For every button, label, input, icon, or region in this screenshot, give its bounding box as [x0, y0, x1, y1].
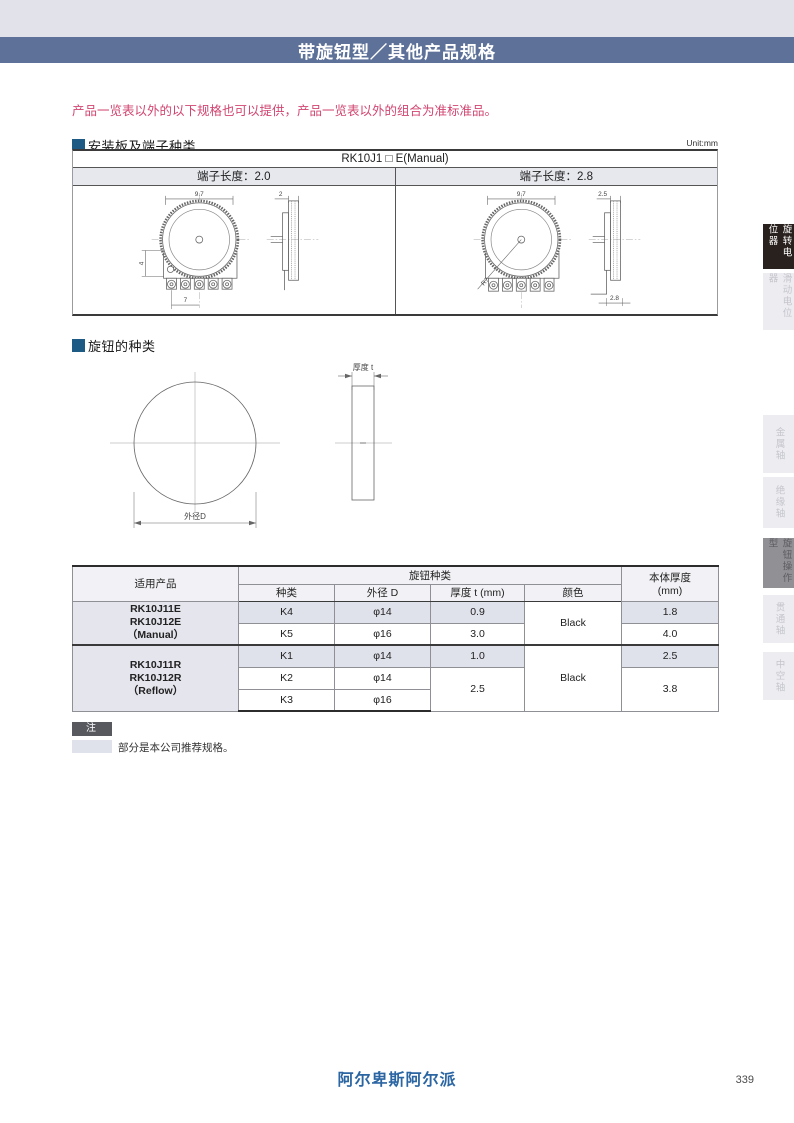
col-header-product: 适用产品 — [73, 566, 239, 601]
cell-product-group2: RK10J11R RK10J12R （Reflow） — [73, 645, 239, 711]
cell-body-thickness: 3.8 — [622, 667, 719, 711]
cell-kind: K3 — [239, 689, 335, 711]
unit-label: Unit:mm — [686, 138, 718, 148]
note-badge: 注 — [72, 722, 112, 736]
sidebar-tab-slide-potentiometer: 滑动电位器 — [763, 273, 794, 330]
sidebar-tab-rotary-potentiometer: 旋转电位器 — [763, 224, 794, 269]
page-header-bar: 带旋钮型／其他产品规格 — [0, 37, 794, 63]
cell-kind: K2 — [239, 667, 335, 689]
dimension-label: 7 — [183, 297, 187, 304]
cell-kind: K1 — [239, 645, 335, 667]
variant-header-row: 端子长度：2.0 端子长度：2.8 — [73, 168, 717, 186]
model-header: RK10J1 □ E(Manual) — [73, 151, 717, 168]
section-knob-title: 旋钮的种类 — [72, 336, 156, 355]
thickness-label: 厚度 t — [353, 362, 374, 372]
knob-spec-table: 适用产品 旋钮种类 本体厚度 (mm) 种类 外径 D 厚度 t (mm) 颜色… — [72, 565, 719, 712]
col-header-knob-type: 旋钮种类 — [239, 566, 622, 584]
dimension-label: 2.5 — [598, 191, 607, 198]
page-number: 339 — [736, 1074, 754, 1086]
cell-dia: φ14 — [335, 667, 431, 689]
sidebar-tab-hollow-shaft: 中空轴 — [763, 652, 794, 700]
variant-left-header: 端子长度：2.0 — [73, 168, 395, 185]
col-header-color: 颜色 — [525, 584, 622, 601]
dimension-label: 4 — [138, 261, 145, 265]
section-knob-label: 旋钮的种类 — [88, 336, 156, 355]
top-band — [0, 0, 794, 37]
col-header-thickness: 厚度 t (mm) — [431, 584, 525, 601]
brand-logo-text: 阿尔卑斯阿尔派 — [0, 1066, 794, 1090]
table-row: RK10J11R RK10J12R （Reflow） K1 φ14 1.0 Bl… — [73, 645, 719, 667]
cell-body-thickness: 4.0 — [622, 623, 719, 645]
product-line: RK10J12E — [73, 616, 238, 629]
product-line: （Manual） — [73, 629, 238, 642]
cell-dia: φ14 — [335, 601, 431, 623]
col-header-body-thickness: 本体厚度 (mm) — [622, 566, 719, 601]
sidebar-tab-metal-shaft: 金属轴 — [763, 415, 794, 473]
cell-body-thickness: 2.5 — [622, 645, 719, 667]
cell-dia: φ14 — [335, 645, 431, 667]
cell-color: Black — [525, 601, 622, 645]
cell-color: Black — [525, 645, 622, 711]
cell-kind: K4 — [239, 601, 335, 623]
variant-right-header: 端子长度：2.8 — [395, 168, 718, 185]
product-line: RK10J11R — [73, 659, 238, 672]
dimension-label: 2 — [279, 191, 283, 198]
catalog-page: 带旋钮型／其他产品规格 产品一览表以外的以下规格也可以提供，产品一览表以外的组合… — [0, 0, 794, 1123]
cell-thickness: 1.0 — [431, 645, 525, 667]
dimension-label: 9.7 — [517, 191, 526, 198]
product-line: RK10J11E — [73, 603, 238, 616]
potentiometer-front-side-drawing: 9.7 4 7 — [79, 187, 389, 313]
table-row: RK10J11E RK10J12E （Manual） K4 φ14 0.9 Bl… — [73, 601, 719, 623]
cell-thickness: 0.9 — [431, 601, 525, 623]
potentiometer-front-side-drawing: R7 9.7 — [401, 187, 711, 313]
product-line: （Reflow） — [73, 685, 238, 698]
cell-kind: K5 — [239, 623, 335, 645]
mounting-table: RK10J1 □ E(Manual) 端子长度：2.0 端子长度：2.8 — [72, 149, 718, 316]
diameter-label: 外径D — [184, 511, 206, 521]
col-header-kind: 种类 — [239, 584, 335, 601]
cell-thickness: 3.0 — [431, 623, 525, 645]
sidebar-tab-knob-operated: 旋钮操作型 — [763, 538, 794, 588]
col-header-body-thickness-line2: (mm) — [622, 585, 718, 597]
dimension-label: 2.8 — [610, 295, 619, 302]
cell-dia: φ16 — [335, 623, 431, 645]
cell-thickness: 2.5 — [431, 667, 525, 711]
cell-body-thickness: 1.8 — [622, 601, 719, 623]
page-title: 带旋钮型／其他产品规格 — [298, 38, 496, 63]
product-line: RK10J12R — [73, 672, 238, 685]
availability-notice: 产品一览表以外的以下规格也可以提供，产品一览表以外的组合为准标准品。 — [72, 100, 632, 119]
knob-dimension-drawing: 外径D 厚度 t — [80, 360, 410, 550]
drawing-terminal-2_8: R7 9.7 — [395, 186, 718, 314]
note-text: 部分是本公司推荐规格。 — [118, 740, 234, 755]
dimension-label: 9.7 — [195, 191, 204, 198]
section-bullet-icon — [72, 339, 85, 352]
drawing-row: 9.7 4 7 — [73, 186, 717, 314]
drawing-terminal-2_0: 9.7 4 7 — [73, 186, 395, 314]
cell-dia: φ16 — [335, 689, 431, 711]
recommended-color-swatch — [72, 740, 112, 753]
sidebar-tab-through-shaft: 贯通轴 — [763, 595, 794, 643]
sidebar-tab-insulated-shaft: 绝缘轴 — [763, 477, 794, 528]
col-header-outer-dia: 外径 D — [335, 584, 431, 601]
cell-product-group1: RK10J11E RK10J12E （Manual） — [73, 601, 239, 645]
col-header-body-thickness-line1: 本体厚度 — [622, 570, 718, 585]
